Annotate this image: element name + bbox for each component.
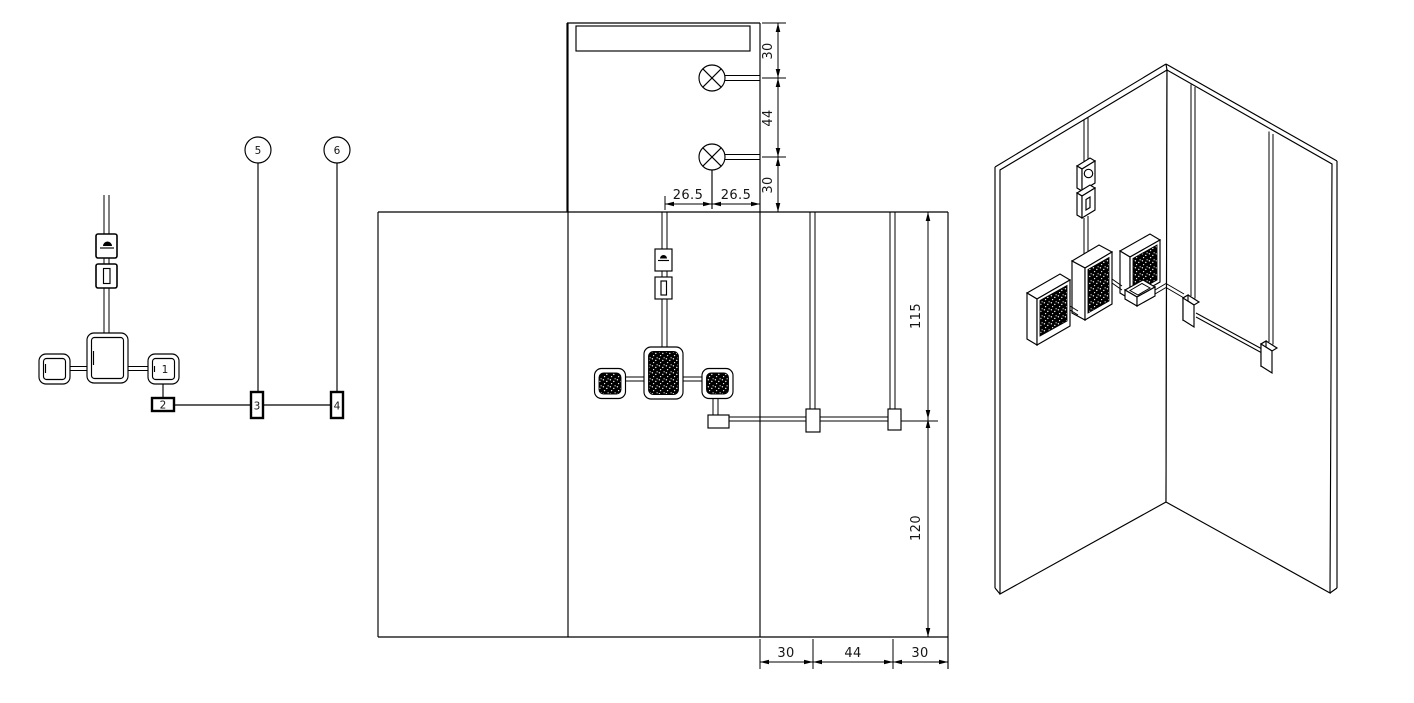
balloon-5-label: 5 (255, 145, 262, 157)
bell-push-front (655, 249, 672, 271)
dim-label: 30 (911, 646, 928, 661)
switch-box-2-front (888, 409, 901, 430)
dim-label: 120 (909, 515, 924, 541)
dim-label: 26.5 (721, 188, 752, 203)
dim-label: 44 (844, 646, 861, 661)
speaker-right-front (702, 369, 733, 399)
indicator-front (655, 277, 672, 299)
speaker-large-front (644, 347, 683, 399)
dim-label: 30 (761, 176, 776, 193)
trunking-outline (576, 26, 750, 51)
central-unit-symbol (87, 333, 128, 383)
dim-label: 44 (761, 109, 776, 126)
speaker-left-front (595, 369, 626, 399)
drawing-area: 5 6 (0, 0, 1414, 703)
junction-3-symbol: 3 (251, 392, 263, 418)
junction-2-label: 2 (160, 400, 167, 412)
dim-label: 30 (777, 646, 794, 661)
dim-label: 26.5 (673, 188, 704, 203)
bell-push-symbol (96, 234, 117, 258)
indicator-symbol (96, 264, 117, 288)
switch-box-1-front (806, 409, 820, 432)
junction-3-label: 3 (254, 401, 261, 413)
dim-label: 30 (761, 42, 776, 59)
dim-label: 115 (909, 303, 924, 329)
unit-1-label: 1 (162, 364, 169, 376)
cad-drawing-canvas: 5 6 (0, 0, 1414, 703)
junction-4-label: 4 (334, 401, 341, 413)
junction-box-front (708, 415, 729, 428)
unit-1-symbol: 1 (148, 354, 179, 384)
left-unit-symbol (39, 354, 70, 384)
junction-2-symbol: 2 (152, 398, 174, 412)
junction-4-symbol: 4 (331, 392, 343, 418)
balloon-6-label: 6 (334, 145, 341, 157)
